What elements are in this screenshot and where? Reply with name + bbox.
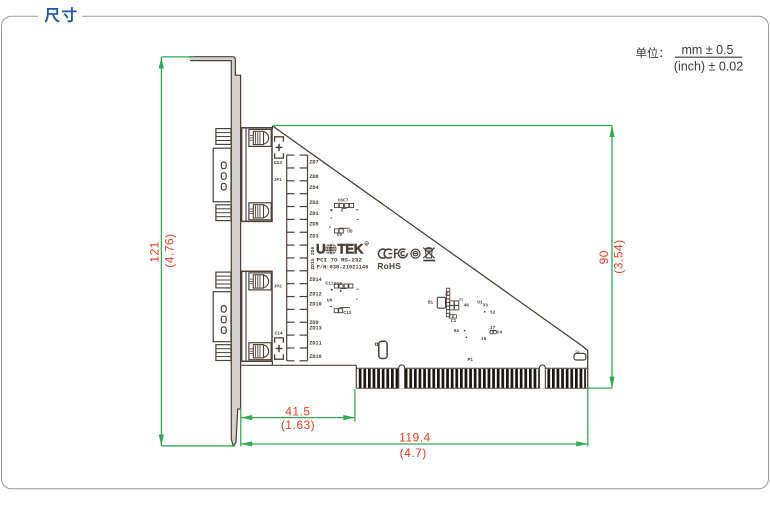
svg-text:C6C7: C6C7 — [338, 198, 349, 204]
svg-text:U6: U6 — [327, 298, 333, 303]
svg-text:ZD14: ZD14 — [309, 277, 321, 283]
svg-text:C4: C4 — [497, 330, 503, 336]
svg-text:(3.54): (3.54) — [612, 239, 626, 273]
svg-text:64: 64 — [454, 328, 460, 334]
svg-text:ZD2: ZD2 — [309, 200, 318, 206]
svg-text:R: R — [366, 242, 368, 246]
svg-text:(1.63): (1.63) — [281, 418, 315, 432]
svg-text:ZD10: ZD10 — [309, 302, 321, 308]
svg-text:C12: C12 — [343, 310, 351, 316]
svg-text:C11: C11 — [325, 280, 333, 286]
svg-text:ZD13: ZD13 — [309, 325, 321, 331]
svg-text:32: 32 — [490, 310, 496, 316]
svg-text:P1: P1 — [468, 357, 474, 363]
svg-text:ZD4: ZD4 — [309, 185, 318, 191]
svg-text:ZD1: ZD1 — [309, 211, 318, 217]
svg-text:(inch) ± 0.02: (inch) ± 0.02 — [674, 60, 743, 74]
svg-text:JP1: JP1 — [274, 178, 282, 183]
svg-text:16: 16 — [481, 336, 487, 342]
svg-text:(4.76): (4.76) — [163, 233, 177, 267]
svg-text:ZD11: ZD11 — [309, 341, 321, 347]
svg-text:P/N:038-21021146: P/N:038-21021146 — [317, 265, 369, 271]
svg-text:U: U — [316, 241, 326, 256]
svg-text:C14: C14 — [275, 331, 284, 337]
svg-text:PCI TO RS-232: PCI TO RS-232 — [317, 257, 363, 264]
svg-text:C13: C13 — [274, 160, 283, 166]
svg-text:JP2: JP2 — [274, 285, 282, 290]
svg-text:ZD16: ZD16 — [309, 354, 321, 360]
svg-text:C5: C5 — [446, 292, 450, 296]
svg-text:ZD6: ZD6 — [309, 174, 318, 180]
svg-text:21: 21 — [459, 299, 463, 303]
svg-text:ZD7: ZD7 — [309, 160, 318, 166]
svg-text:U5: U5 — [347, 228, 353, 234]
svg-text:TEK: TEK — [338, 241, 364, 256]
svg-text:46: 46 — [464, 302, 470, 308]
svg-text:ZD12: ZD12 — [309, 292, 321, 298]
svg-text:33: 33 — [483, 302, 489, 308]
svg-text:单位：: 单位： — [636, 46, 671, 60]
svg-text:mm ± 0.5: mm ± 0.5 — [682, 43, 734, 57]
svg-text:ZD6: ZD6 — [310, 247, 316, 256]
svg-text:(4.7): (4.7) — [400, 446, 427, 460]
svg-text:ZD3: ZD3 — [309, 234, 318, 240]
svg-text:41.5: 41.5 — [285, 405, 310, 419]
svg-text:ZD5: ZD5 — [309, 221, 318, 227]
svg-text:C1: C1 — [451, 318, 457, 324]
svg-text:8: 8 — [341, 210, 343, 214]
svg-text:ZD15: ZD15 — [310, 258, 316, 270]
svg-text:C9: C9 — [337, 232, 343, 238]
svg-text:121: 121 — [147, 241, 161, 263]
svg-text:119.4: 119.4 — [399, 430, 431, 444]
svg-text:B1: B1 — [428, 301, 434, 306]
svg-text:RoHS: RoHS — [377, 261, 401, 271]
svg-text:90: 90 — [597, 250, 611, 264]
svg-text:尺寸: 尺寸 — [45, 6, 79, 25]
